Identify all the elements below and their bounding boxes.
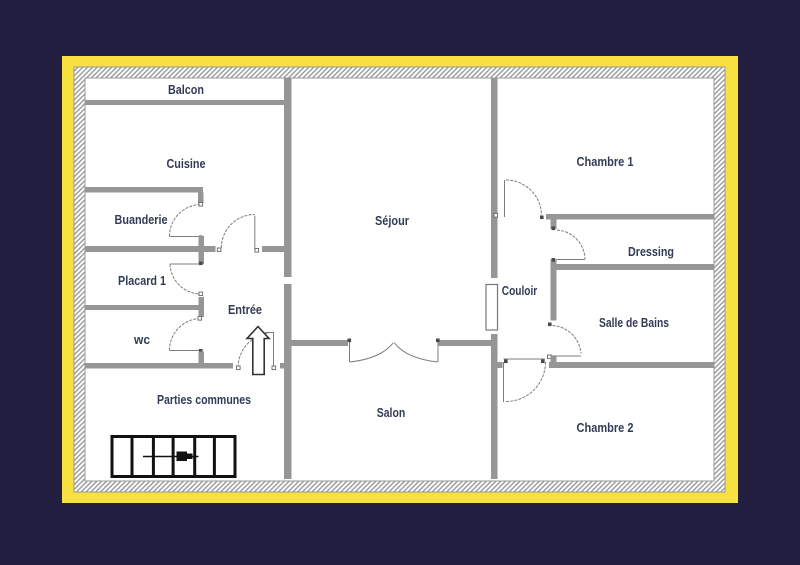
svg-text:Placard 1: Placard 1	[118, 273, 166, 288]
svg-text:Salle de Bains: Salle de Bains	[599, 315, 669, 330]
svg-text:Entrée: Entrée	[228, 302, 262, 317]
svg-text:Salon: Salon	[377, 405, 406, 420]
svg-text:wc: wc	[133, 332, 150, 347]
svg-text:Cuisine: Cuisine	[167, 156, 206, 171]
svg-text:Séjour: Séjour	[375, 213, 409, 228]
svg-text:Balcon: Balcon	[168, 82, 204, 97]
svg-text:Buanderie: Buanderie	[115, 212, 168, 227]
svg-text:Dressing: Dressing	[628, 244, 674, 259]
svg-text:Chambre 2: Chambre 2	[577, 420, 634, 435]
svg-text:Chambre 1: Chambre 1	[577, 154, 634, 169]
svg-text:Couloir: Couloir	[502, 283, 538, 298]
svg-text:Parties communes: Parties communes	[157, 392, 251, 407]
